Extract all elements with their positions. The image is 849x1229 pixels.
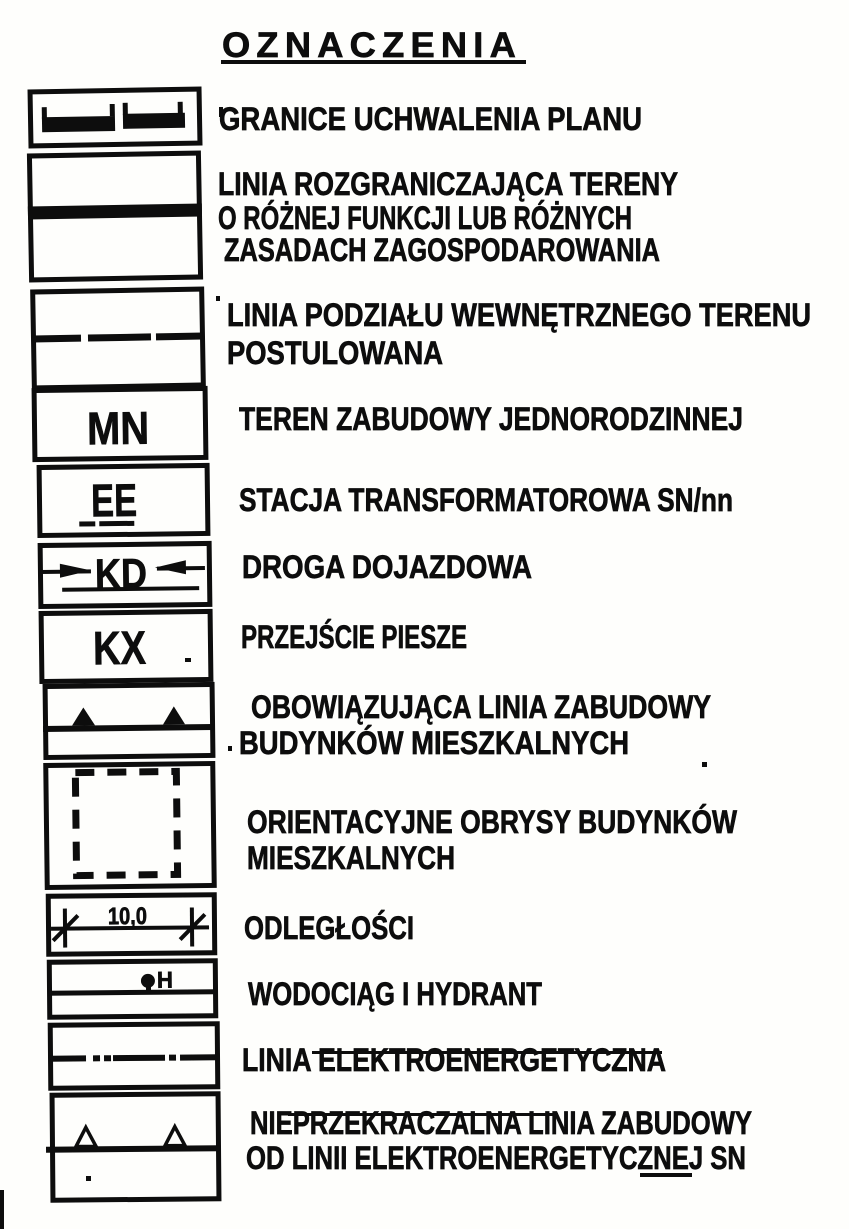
svg-text:GRANICE UCHWALENIA PLANU: GRANICE UCHWALENIA PLANU xyxy=(219,101,642,137)
svg-text:PRZEJŚCIE PIESZE: PRZEJŚCIE PIESZE xyxy=(241,619,467,655)
svg-text:ODLEGŁOŚCI: ODLEGŁOŚCI xyxy=(244,910,414,946)
svg-text:ORIENTACYJNE OBRYSY BUDYNKÓW: ORIENTACYJNE OBRYSY BUDYNKÓW xyxy=(247,804,738,840)
svg-text:LINIA ELEKTROENERGETYCZNA: LINIA ELEKTROENERGETYCZNA xyxy=(242,1042,666,1078)
svg-text:MIESZKALNYCH: MIESZKALNYCH xyxy=(247,840,455,876)
svg-text:O RÓŻNEJ FUNKCJI LUB RÓŻNYCH: O RÓŻNEJ FUNKCJI LUB RÓŻNYCH xyxy=(218,200,632,236)
svg-text:MN: MN xyxy=(87,402,150,455)
svg-text:LINIA ROZGRANICZAJĄCA TERENY: LINIA ROZGRANICZAJĄCA TERENY xyxy=(218,166,678,202)
svg-text:DROGA DOJAZDOWA: DROGA DOJAZDOWA xyxy=(242,549,532,585)
svg-text:BUDYNKÓW MIESZKALNYCH: BUDYNKÓW MIESZKALNYCH xyxy=(239,725,629,761)
svg-text:H: H xyxy=(157,967,173,993)
svg-text:OBOWIĄZUJĄCA LINIA ZABUDOWY: OBOWIĄZUJĄCA LINIA ZABUDOWY xyxy=(251,689,711,725)
svg-text:ZASADACH ZAGOSPODAROWANIA: ZASADACH ZAGOSPODAROWANIA xyxy=(224,232,660,268)
svg-text:STACJA TRANSFORMATOROWA SN/nn: STACJA TRANSFORMATOROWA SN/nn xyxy=(239,482,733,518)
svg-text:OD LINII ELEKTROENERGETYCZNEJ: OD LINII ELEKTROENERGETYCZNEJ SN xyxy=(246,1140,746,1176)
svg-text:POSTULOWANA: POSTULOWANA xyxy=(227,335,443,371)
svg-text:LINIA PODZIAŁU WEWNĘTRZNEGO TE: LINIA PODZIAŁU WEWNĘTRZNEGO TERENU xyxy=(227,297,811,333)
svg-text:EE: EE xyxy=(91,474,138,527)
svg-text:10,0: 10,0 xyxy=(108,903,147,930)
svg-text:KX: KX xyxy=(93,621,147,675)
svg-text:OZNACZENIA: OZNACZENIA xyxy=(222,26,522,65)
svg-text:WODOCIĄG I HYDRANT: WODOCIĄG I HYDRANT xyxy=(248,976,542,1012)
svg-text:NIEPRZEKRACZALNA LINIA ZABUDOW: NIEPRZEKRACZALNA LINIA ZABUDOWY xyxy=(250,1105,752,1141)
svg-text:TEREN ZABUDOWY JEDNORODZINNEJ: TEREN ZABUDOWY JEDNORODZINNEJ xyxy=(239,401,743,437)
